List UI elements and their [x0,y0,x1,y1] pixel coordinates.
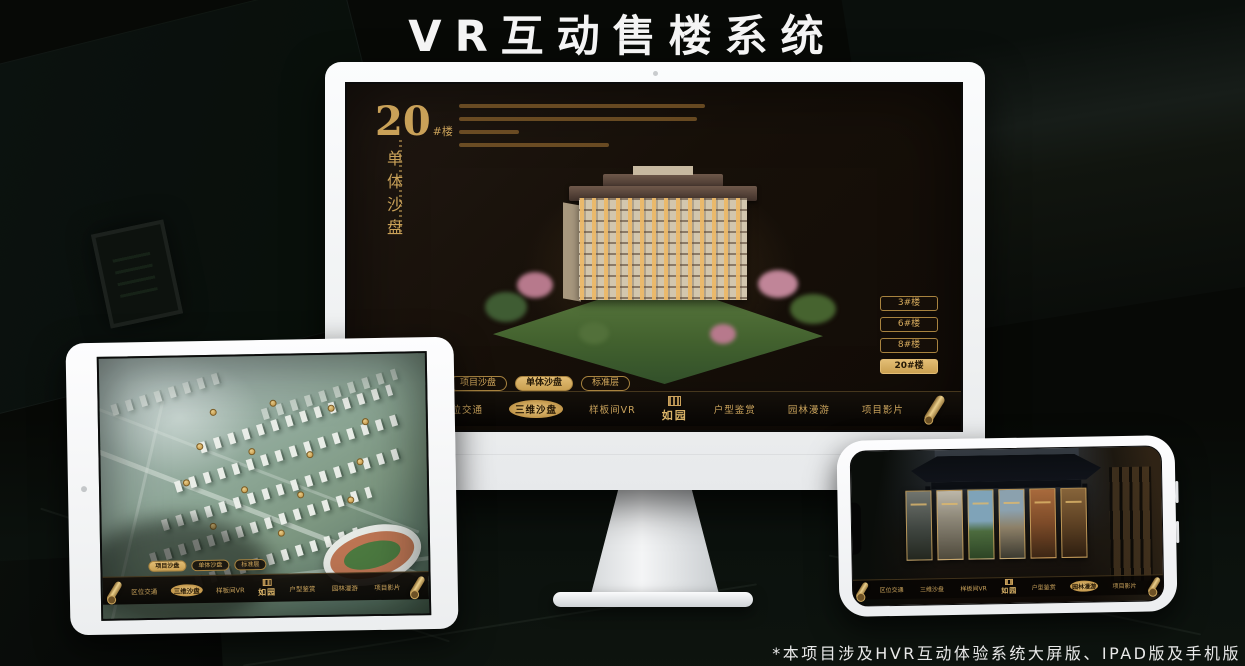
gallery-panel[interactable] [1060,488,1087,558]
tree-blossom [710,324,736,344]
tree-blossom [758,270,798,298]
building-headline: 20#楼 单体沙盘 [375,102,453,250]
floor-button-3[interactable]: 3#楼 [880,296,938,311]
subtab-standard-floor[interactable]: 标准层 [234,559,266,571]
subtab-single-sandtable[interactable]: 单体沙盘 [191,560,229,572]
tablet-device: 项目沙盘 单体沙盘 标准层 区位交通 三维沙盘 样板间VR 如园 户型鉴赏 园林… [65,337,458,636]
ruyuan-logo[interactable]: 如园 [258,579,276,598]
nav-item-floorplan[interactable]: 户型鉴赏 [708,400,762,418]
gallery-panel[interactable] [905,490,932,560]
ruyuan-logo[interactable]: 如园 [1001,579,1017,596]
subtab-project-sandtable[interactable]: 项目沙盘 [449,376,507,391]
floor-button-group: 3#楼 6#楼 8#楼 20#楼 [880,296,940,380]
building-penthouse [633,166,693,175]
nav-item-garden-roam[interactable]: 园林漫游 [329,581,361,594]
phone-screen: 区位交通 三维沙盘 样板间VR 如园 户型鉴赏 园林漫游 项目影片 [850,445,1165,606]
tree-green [790,294,836,324]
phone-side-button [1175,481,1178,503]
nav-item-garden-roam[interactable]: 园林漫游 [782,400,836,418]
text-line [459,104,705,108]
tablet-screen: 项目沙盘 单体沙盘 标准层 区位交通 三维沙盘 样板间VR 如园 户型鉴赏 园林… [97,351,432,621]
nav-item-project-film[interactable]: 项目影片 [1110,580,1138,591]
nav-item-project-film[interactable]: 项目影片 [371,580,403,593]
ruyuan-seal-icon [262,579,271,586]
nav-item-3d-sandtable-active[interactable]: 三维沙盘 [509,400,563,418]
nav-item-showroom-vr[interactable]: 样板间VR [958,582,988,594]
tablet-subtabs: 项目沙盘 单体沙盘 标准层 [148,559,266,572]
tablet-main-nav: 区位交通 三维沙盘 样板间VR 如园 户型鉴赏 园林漫游 项目影片 [103,571,429,605]
tree-blossom [517,272,553,298]
subtab-single-sandtable-active[interactable]: 单体沙盘 [515,376,573,391]
gallery-panel[interactable] [1029,488,1056,558]
scroll-icon[interactable] [1147,576,1161,595]
building-number-suffix: #楼 [433,123,453,139]
scroll-icon[interactable] [855,581,869,600]
nav-item-location[interactable]: 区位交通 [877,584,905,595]
sandtable-subtabs: 项目沙盘 单体沙盘 标准层 [449,376,630,391]
tree-green [579,322,609,344]
gallery-panel[interactable] [998,489,1025,559]
scene-gallery [905,488,1087,561]
floor-button-20-active[interactable]: 20#楼 [880,359,938,374]
phone-device: 区位交通 三维沙盘 样板间VR 如园 户型鉴赏 园林漫游 项目影片 [836,435,1177,617]
ruyuan-seal-icon [1005,579,1013,585]
scroll-icon[interactable] [409,575,426,597]
floor-button-8[interactable]: 8#楼 [880,338,938,353]
phone-side-button [1176,521,1179,543]
building-3d-render[interactable] [487,150,832,390]
nav-item-showroom-vr[interactable]: 样板间VR [213,583,248,596]
monitor-stand-base [553,592,753,607]
ruyuan-logo[interactable]: 如园 [662,396,688,423]
gallery-panel[interactable] [967,489,994,559]
nav-item-showroom-vr[interactable]: 样板间VR [583,400,642,418]
poster-canvas: VR互动售楼系统 20#楼 单体沙盘 [0,0,1245,666]
tree-green [485,292,527,322]
floor-button-6[interactable]: 6#楼 [880,317,938,332]
gate-roof-silhouette [911,453,1101,482]
headline-english-strip [399,140,402,232]
building-number: 20 [375,102,431,142]
webcam-icon [653,71,658,76]
nav-item-project-film[interactable]: 项目影片 [856,400,910,418]
ruyuan-seal-icon [668,396,681,406]
nav-item-3d-sandtable[interactable]: 三维沙盘 [918,583,946,594]
building-front-facade [579,198,747,300]
gallery-panel[interactable] [936,490,963,560]
nav-item-floorplan[interactable]: 户型鉴赏 [286,582,318,595]
subtab-standard-floor[interactable]: 标准层 [581,376,630,391]
nav-item-floorplan[interactable]: 户型鉴赏 [1030,581,1058,592]
page-title: VR互动售楼系统 [0,2,1245,64]
scroll-icon[interactable] [923,394,947,424]
scroll-icon[interactable] [106,580,123,602]
building-model [559,168,759,308]
phone-notch [852,503,862,555]
nav-item-location[interactable]: 区位交通 [128,584,160,597]
nav-item-3d-sandtable-active[interactable]: 三维沙盘 [171,584,203,597]
nav-item-garden-roam-active[interactable]: 园林漫游 [1070,580,1098,591]
text-line [459,117,697,121]
subtab-project-sandtable-active[interactable]: 项目沙盘 [148,560,186,572]
text-line [459,130,519,134]
footnote-text: *本项目涉及HVR互动体验系统大屏版、IPAD版及手机版 [772,640,1241,664]
tablet-camera-icon [81,486,87,492]
